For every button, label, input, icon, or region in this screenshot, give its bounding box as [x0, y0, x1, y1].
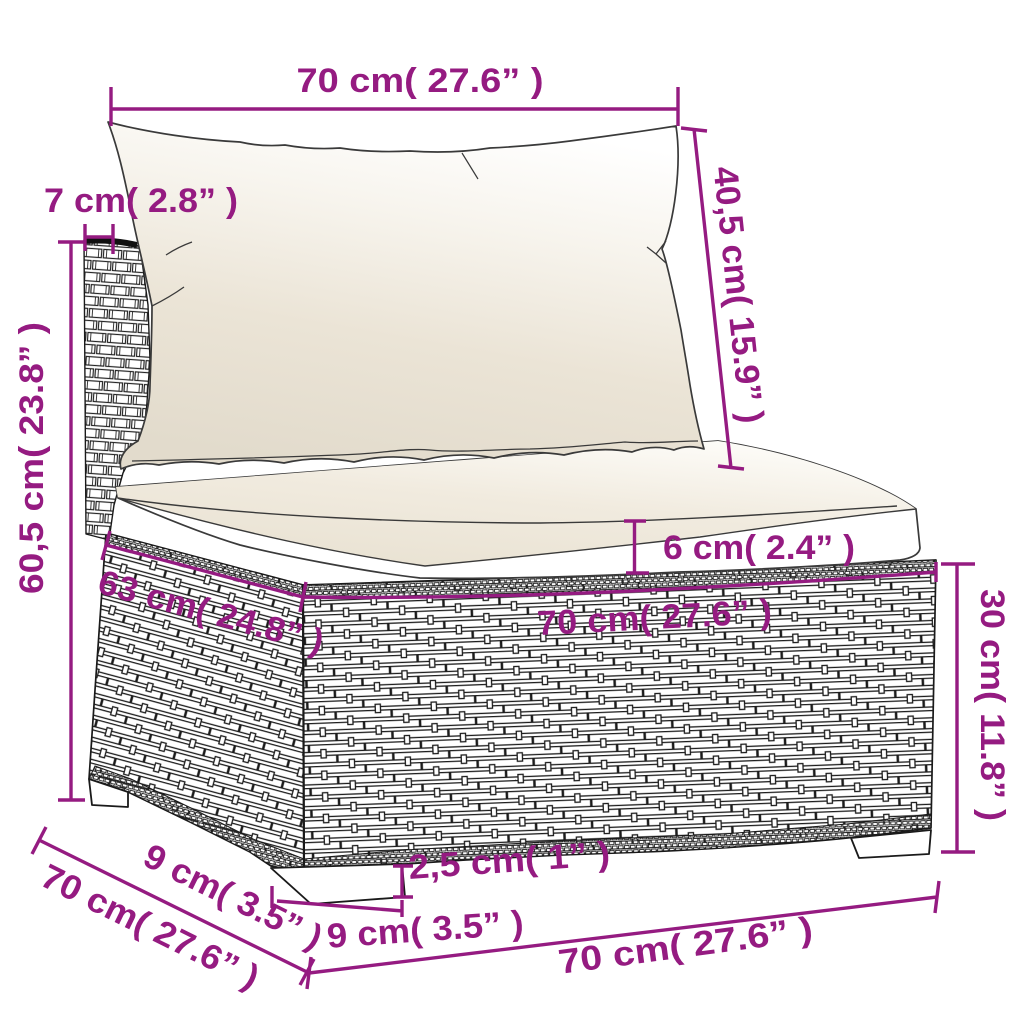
- svg-text:70 cm( 27.6” ): 70 cm( 27.6” ): [297, 62, 544, 100]
- svg-text:60,5 cm( 23.8” ): 60,5 cm( 23.8” ): [13, 322, 51, 594]
- svg-text:7 cm( 2.8” ): 7 cm( 2.8” ): [44, 182, 238, 220]
- svg-text:30 cm( 11.8” ): 30 cm( 11.8” ): [973, 589, 1011, 821]
- svg-text:6 cm( 2.4” ): 6 cm( 2.4” ): [663, 529, 855, 567]
